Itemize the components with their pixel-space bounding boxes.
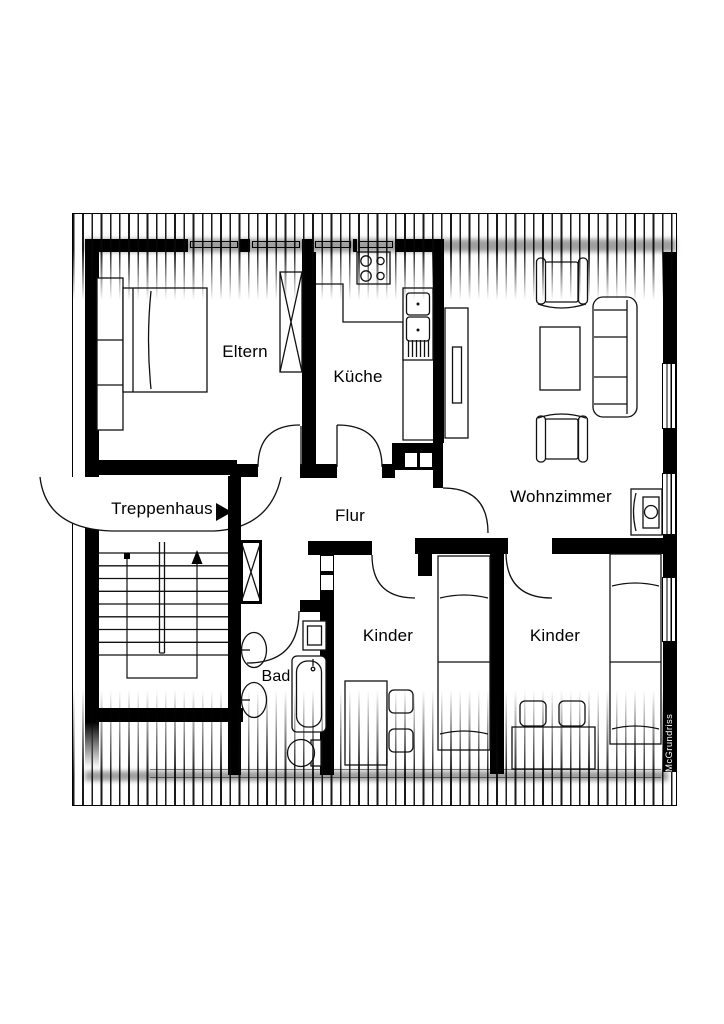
room-label-treppenhaus: Treppenhaus bbox=[111, 499, 213, 519]
floor-plan: Eltern Küche Wohnzimmer Treppenhaus Flur… bbox=[0, 0, 724, 1024]
wall-wohnzimmer-bottom bbox=[552, 538, 676, 554]
wall-right bbox=[663, 427, 676, 473]
roof-hatching-top bbox=[73, 214, 676, 302]
wall-flur-top bbox=[382, 464, 395, 478]
room-label-kinder-right: Kinder bbox=[530, 626, 580, 646]
shaft-box bbox=[240, 540, 262, 604]
credit-watermark: McGrundriss bbox=[662, 680, 677, 772]
duct-opening bbox=[321, 556, 333, 571]
wall-kinder1-top bbox=[308, 541, 372, 555]
wall-right bbox=[663, 533, 676, 577]
window-icon bbox=[662, 363, 676, 429]
room-label-wohnzimmer: Wohnzimmer bbox=[510, 487, 612, 507]
wall-flur-bottom bbox=[415, 538, 508, 554]
room-label-eltern: Eltern bbox=[222, 342, 268, 362]
room-label-kinder-left: Kinder bbox=[363, 626, 413, 646]
duct-kitchen bbox=[392, 443, 443, 470]
wall-left bbox=[85, 239, 99, 722]
window-icon bbox=[662, 577, 676, 642]
wall-stub bbox=[418, 554, 432, 576]
window-icon bbox=[662, 473, 676, 535]
roof-hatching-bottom bbox=[73, 690, 676, 805]
wall-treppenhaus-top bbox=[85, 460, 237, 475]
wall-flur-top bbox=[300, 464, 337, 478]
stair-direction-arrow-icon bbox=[216, 503, 232, 521]
room-label-flur: Flur bbox=[335, 506, 365, 526]
wall-stub bbox=[433, 470, 443, 488]
duct-opening bbox=[405, 453, 417, 467]
room-label-kueche: Küche bbox=[333, 367, 382, 387]
room-label-bad: Bad bbox=[261, 668, 290, 686]
duct-opening bbox=[321, 575, 333, 590]
duct-opening bbox=[420, 453, 432, 467]
wall-bad-door-stub bbox=[300, 600, 320, 612]
